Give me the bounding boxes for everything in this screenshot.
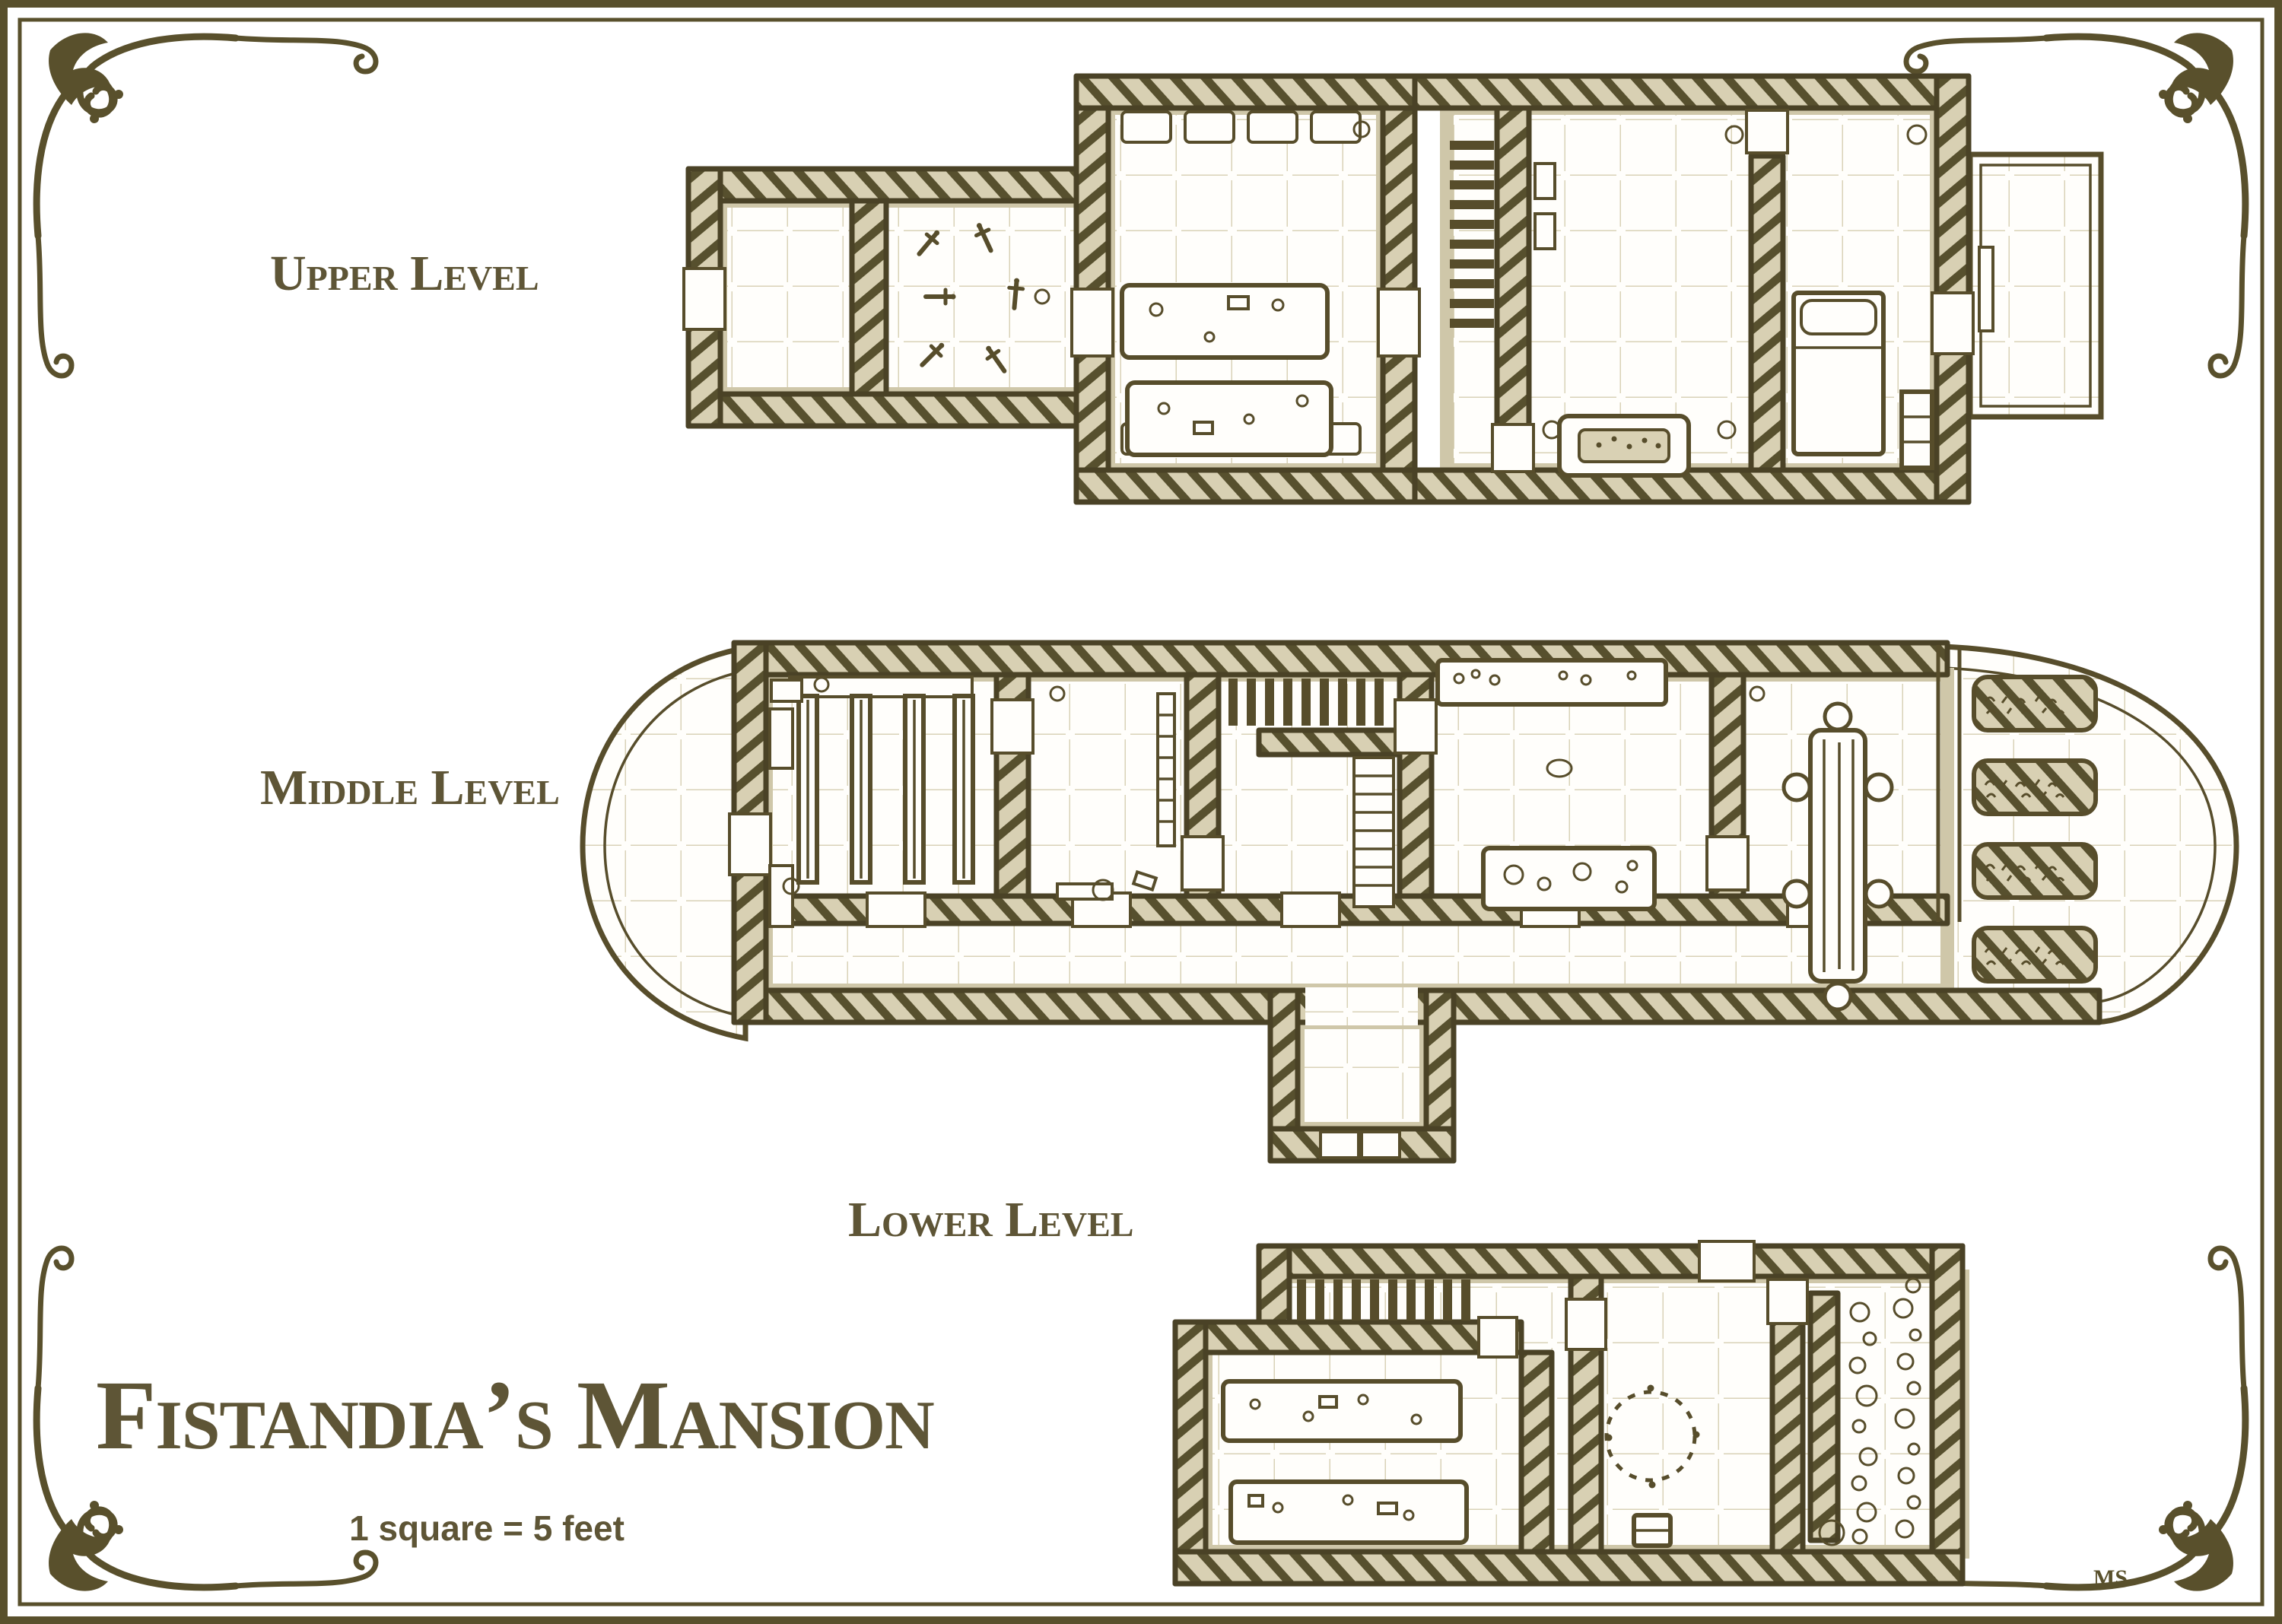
chair	[1866, 881, 1892, 907]
map-page: Upper Level Middle Level Lower Level Fis…	[0, 0, 2282, 1624]
bed	[1794, 293, 1883, 454]
chair	[1784, 774, 1810, 800]
bench	[1311, 112, 1360, 142]
chair	[1825, 984, 1851, 1009]
front-door	[1362, 1132, 1400, 1158]
bench	[1248, 112, 1297, 142]
cabinet	[1535, 214, 1555, 249]
chair	[1825, 704, 1851, 729]
counter	[1483, 848, 1654, 909]
long-table	[1122, 285, 1327, 358]
ladder-shelf	[1158, 694, 1174, 846]
storage-shelf	[1810, 1293, 1838, 1540]
middle-level-map	[583, 643, 2236, 1161]
bench	[1185, 112, 1234, 142]
chest	[1634, 1515, 1670, 1546]
cabinet	[1535, 164, 1555, 199]
wardrobe	[1902, 392, 1932, 468]
bench	[1057, 884, 1112, 899]
front-door	[1321, 1132, 1359, 1158]
scale-note: 1 square = 5 feet	[304, 1508, 669, 1549]
balcony-bench	[1979, 247, 1993, 331]
lower-level-label: Lower Level	[848, 1191, 1134, 1249]
chair	[1784, 881, 1810, 907]
pillow	[1801, 300, 1876, 334]
upper-level-map	[684, 76, 2101, 502]
lower-level-map	[1175, 1241, 1963, 1584]
page-title: Fistandia’s Mansion	[96, 1359, 934, 1473]
crate	[771, 680, 802, 701]
dining-table	[1810, 730, 1865, 981]
sideboard	[1438, 660, 1666, 704]
corner-flourish-icon	[37, 33, 376, 376]
fireplace	[1559, 416, 1689, 475]
work-table	[1223, 1381, 1460, 1441]
artist-signature: MS	[2093, 1565, 2128, 1591]
bench	[1122, 112, 1171, 142]
middle-level-label: Middle Level	[260, 759, 560, 817]
chair	[1866, 774, 1892, 800]
work-table	[1231, 1482, 1467, 1543]
vestibule-opening	[1305, 987, 1418, 1025]
desk	[770, 866, 793, 926]
desk	[770, 709, 793, 768]
upper-level-label: Upper Level	[270, 245, 539, 303]
long-table	[1127, 383, 1331, 455]
